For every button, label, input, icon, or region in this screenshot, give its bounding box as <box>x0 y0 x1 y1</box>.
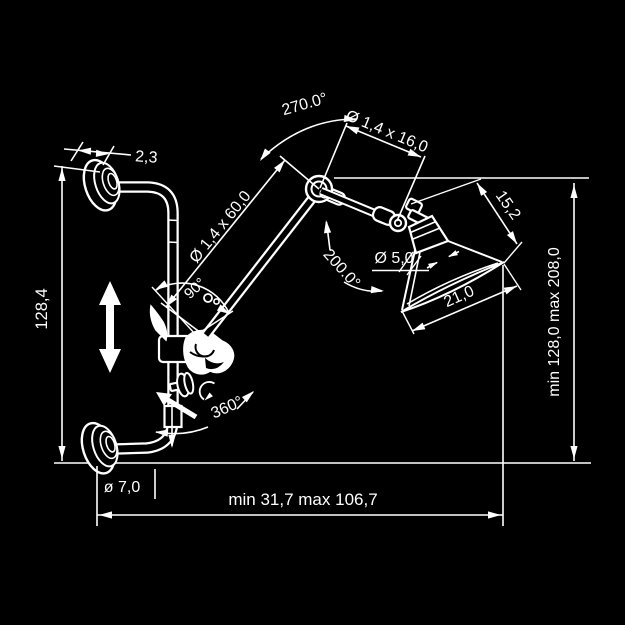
mount-flange-top <box>78 155 126 215</box>
lamp-socket <box>405 198 448 253</box>
dim-tube-diameter-label: ø 7,0 <box>104 479 141 496</box>
dim-shade-side-label: 15,2 <box>492 188 524 223</box>
dim-height-range-label: min 128,0 max 208,0 <box>546 247 563 397</box>
angle-360-label: 360° <box>209 393 246 422</box>
dim-rail-height: 128,4 <box>33 166 100 461</box>
dim-reach-range-label: min 31,7 max 106,7 <box>228 490 377 509</box>
angle-270: 270.0° <box>257 90 357 163</box>
dim-height-range: min 128,0 max 208,0 <box>334 178 589 461</box>
dim-reach-range: min 31,7 max 106,7 <box>97 265 503 526</box>
dim-socket-diameter-label: Ø 5,0 <box>374 250 413 267</box>
screw-head-small <box>214 299 219 304</box>
head-joint <box>371 205 406 231</box>
screw-head <box>204 294 212 302</box>
clamp-lever <box>151 306 167 340</box>
dim-rail-height-label: 128,4 <box>33 288 51 329</box>
mount-flange-bottom <box>76 418 124 478</box>
slide-direction-arrow <box>99 281 121 373</box>
dim-arm-lower: Ø 1,4 x 60,0 <box>161 156 319 336</box>
technical-drawing: 128,4 min 128,0 max 208,0 min 31,7 max 1… <box>0 0 625 625</box>
lamp-dimension-diagram: 128,4 min 128,0 max 208,0 min 31,7 max 1… <box>0 0 625 625</box>
angle-200-label: 200.0° <box>319 246 363 292</box>
dim-flange-thickness-label: 2,3 <box>135 148 158 167</box>
angle-270-label: 270.0° <box>280 90 329 119</box>
dim-flange-thickness: 2,3 <box>64 142 158 167</box>
dim-arm-lower-label: Ø 1,4 x 60,0 <box>186 188 254 267</box>
